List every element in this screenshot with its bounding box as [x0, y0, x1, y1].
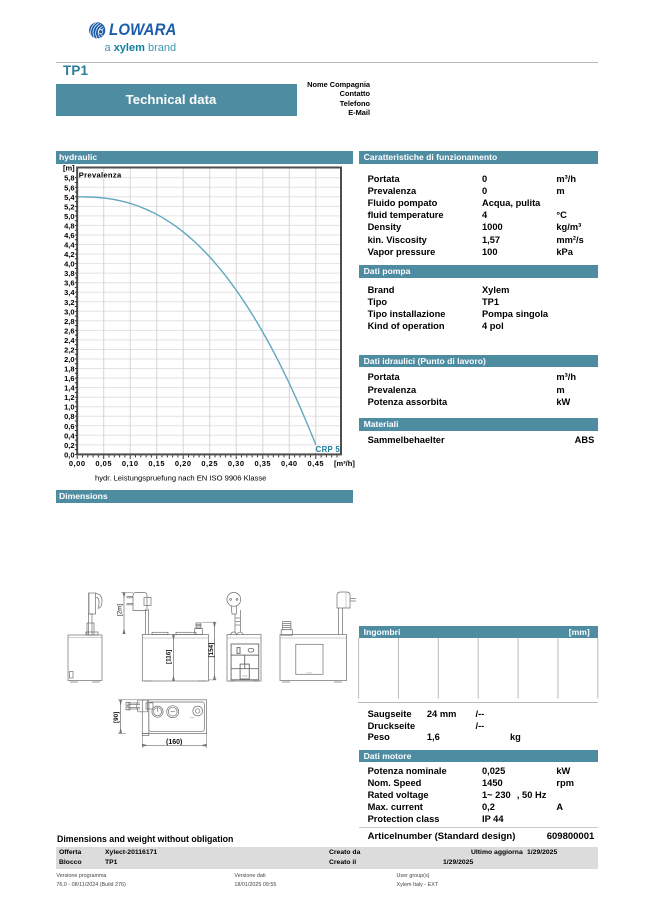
svg-text:0,35: 0,35 [254, 459, 271, 468]
svg-text:[90]: [90] [113, 712, 120, 723]
svg-text:5,2: 5,2 [64, 202, 74, 211]
svg-text:4,0: 4,0 [64, 260, 74, 269]
svg-text:5,6: 5,6 [64, 183, 74, 192]
svg-text:0,15: 0,15 [148, 459, 165, 468]
svg-text:[m³/h]: [m³/h] [334, 459, 355, 468]
svg-text:0,40: 0,40 [281, 459, 298, 468]
svg-text:2,0: 2,0 [64, 355, 74, 364]
svg-text:4,6: 4,6 [64, 231, 74, 240]
svg-text:0,30: 0,30 [228, 459, 245, 468]
svg-text:2,4: 2,4 [64, 336, 75, 345]
svg-text:0,00: 0,00 [69, 459, 86, 468]
svg-text:5,0: 5,0 [64, 212, 74, 221]
svg-text:4,4: 4,4 [64, 241, 75, 250]
svg-text:hydr. Leistungspruefung nach E: hydr. Leistungspruefung nach EN ISO 9906… [95, 473, 266, 482]
svg-text:5,8: 5,8 [64, 174, 74, 183]
svg-text:Prevalenza: Prevalenza [79, 170, 122, 179]
svg-text:0,8: 0,8 [64, 412, 74, 421]
svg-text:0,20: 0,20 [175, 459, 192, 468]
svg-text:0,25: 0,25 [201, 459, 218, 468]
svg-text:(160): (160) [166, 739, 182, 746]
svg-text:4,8: 4,8 [64, 221, 74, 230]
svg-text:1,2: 1,2 [64, 393, 74, 402]
svg-text:[116]: [116] [166, 650, 173, 664]
svg-text:2,8: 2,8 [64, 317, 74, 326]
svg-text:[2m]: [2m] [117, 604, 124, 616]
svg-text:3,6: 3,6 [64, 279, 74, 288]
svg-text:0,45: 0,45 [307, 459, 324, 468]
svg-text:2,6: 2,6 [64, 326, 74, 335]
svg-text:1,0: 1,0 [64, 403, 74, 412]
svg-text:0,4: 0,4 [64, 431, 75, 440]
svg-text:0,2: 0,2 [64, 441, 74, 450]
svg-text:[m]: [m] [63, 164, 75, 173]
svg-text:3,8: 3,8 [64, 269, 74, 278]
svg-text:[154]: [154] [208, 643, 215, 658]
svg-text:4,2: 4,2 [64, 250, 74, 259]
svg-text:CRP 5: CRP 5 [316, 445, 341, 454]
svg-text:0,05: 0,05 [95, 459, 112, 468]
svg-text:2,2: 2,2 [64, 346, 74, 355]
svg-text:0,10: 0,10 [122, 459, 139, 468]
svg-text:5,4: 5,4 [64, 193, 75, 202]
svg-text:1,4: 1,4 [64, 384, 75, 393]
svg-text:3,2: 3,2 [64, 298, 74, 307]
svg-text:1,6: 1,6 [64, 374, 74, 383]
svg-text:3,4: 3,4 [64, 288, 75, 297]
svg-text:1,8: 1,8 [64, 365, 74, 374]
svg-text:0,6: 0,6 [64, 422, 74, 431]
svg-text:3,0: 3,0 [64, 307, 74, 316]
